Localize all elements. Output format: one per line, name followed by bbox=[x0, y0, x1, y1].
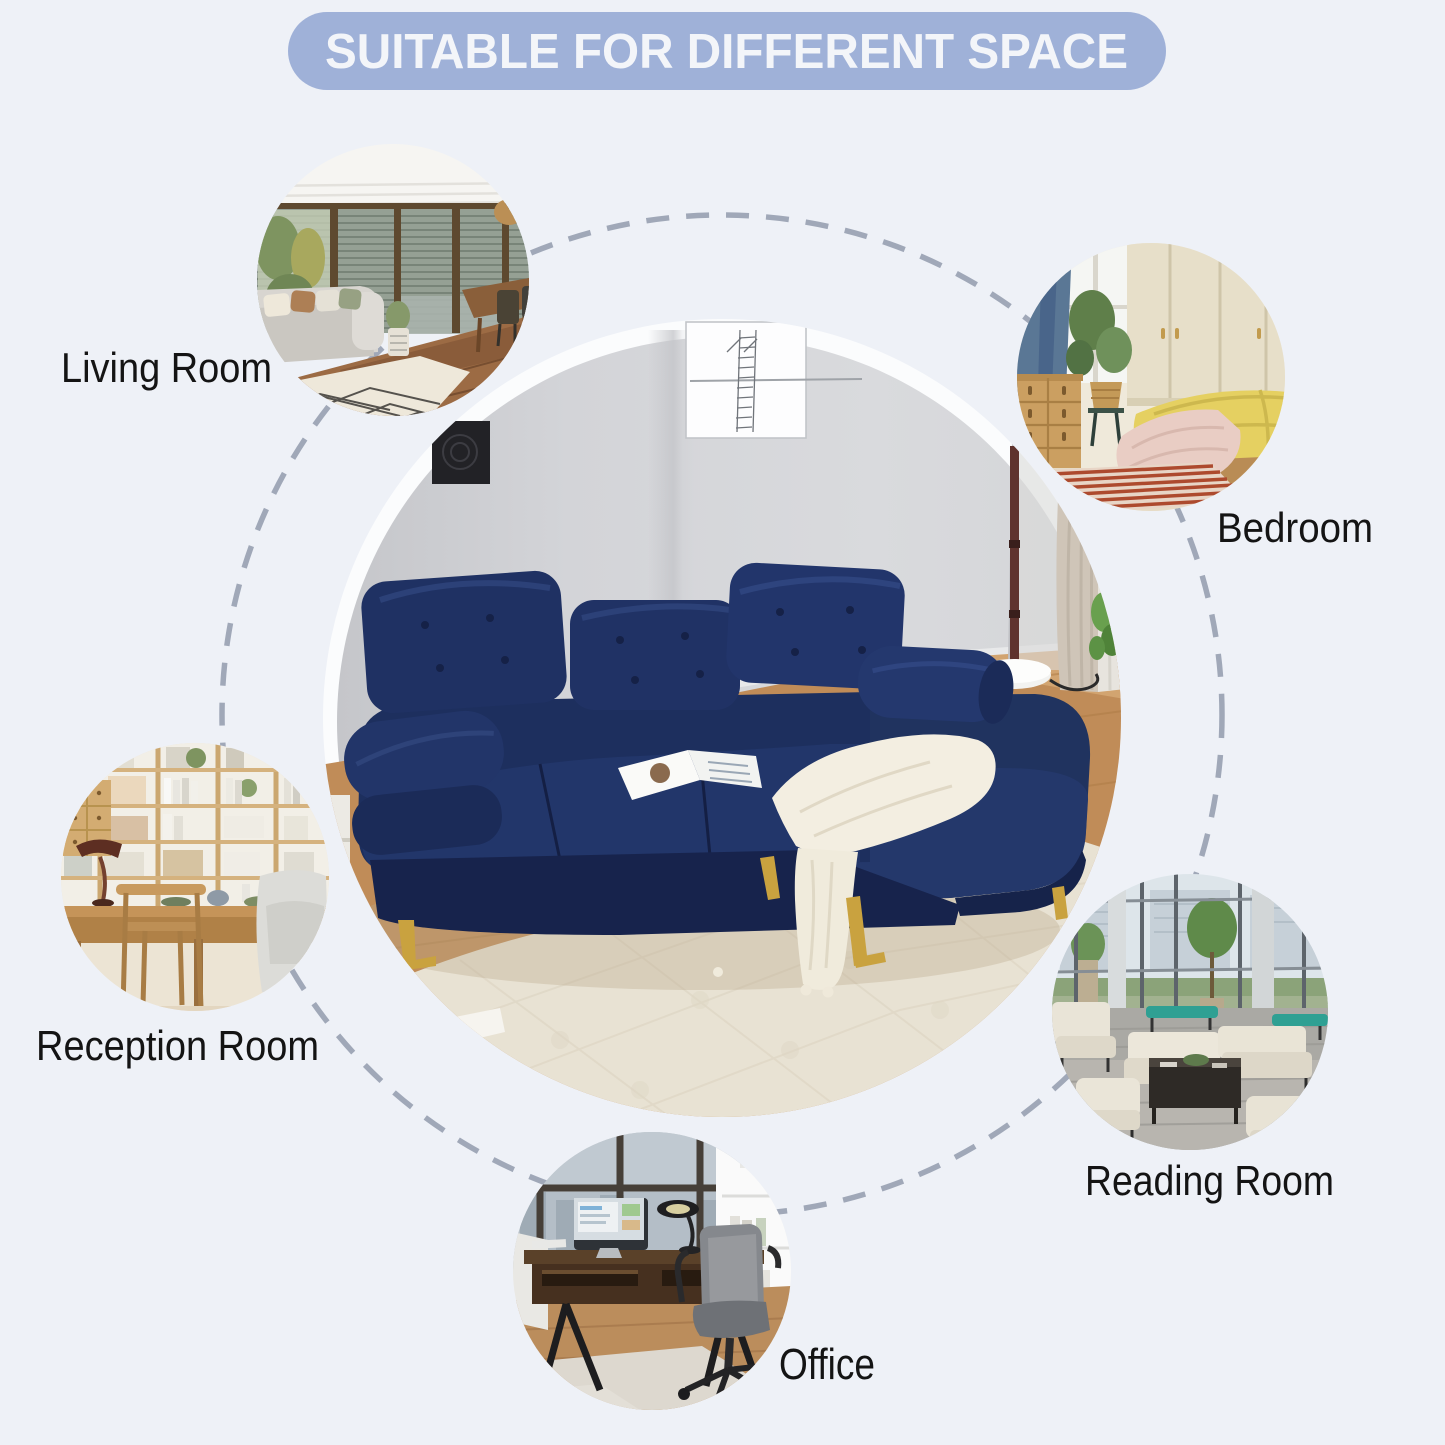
svg-text:Reception Room: Reception Room bbox=[36, 1022, 319, 1069]
svg-text:Office: Office bbox=[779, 1340, 875, 1389]
svg-text:Living Room: Living Room bbox=[61, 344, 272, 391]
svg-text:Bedroom: Bedroom bbox=[1217, 504, 1373, 551]
svg-text:Reading Room: Reading Room bbox=[1085, 1157, 1334, 1204]
svg-text:SUITABLE FOR DIFFERENT SPACE: SUITABLE FOR DIFFERENT SPACE bbox=[325, 25, 1128, 79]
